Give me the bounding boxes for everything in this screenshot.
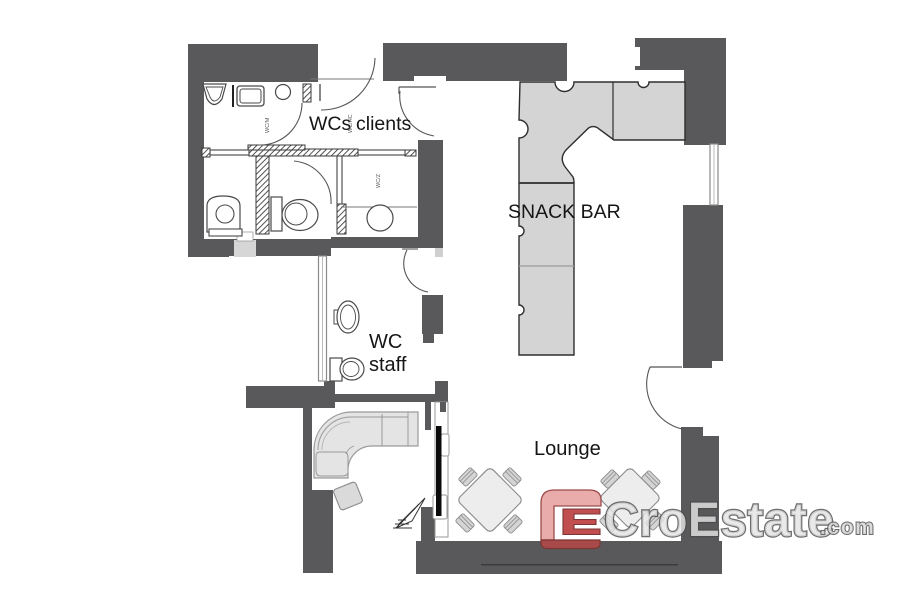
svg-text:SNACK BAR: SNACK BAR bbox=[508, 201, 621, 223]
svg-text:WC/HC: WC/HC bbox=[348, 114, 354, 133]
svg-text:WC/M: WC/M bbox=[265, 117, 271, 133]
svg-text:clients: clients bbox=[356, 113, 412, 135]
svg-text:Lounge: Lounge bbox=[534, 438, 601, 460]
svg-text:.com: .com bbox=[820, 516, 875, 539]
svg-text:WCs: WCs bbox=[309, 113, 351, 135]
svg-text:staff: staff bbox=[369, 354, 407, 376]
svg-text:CroEstate: CroEstate bbox=[604, 494, 834, 547]
svg-text:WC: WC bbox=[369, 331, 402, 353]
svg-text:WC/Z: WC/Z bbox=[376, 173, 382, 188]
